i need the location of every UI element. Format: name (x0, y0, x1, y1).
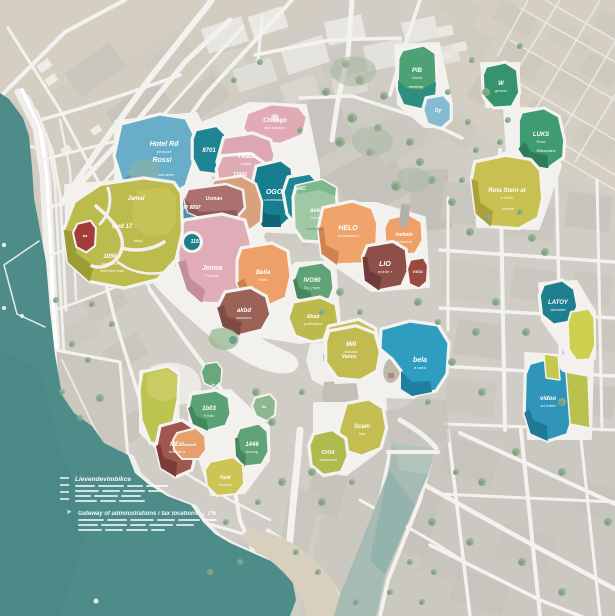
svg-text:LUKS: LUKS (533, 132, 549, 138)
svg-text:o Stent: o Stent (501, 195, 515, 200)
svg-text:Grahad: Grahad (218, 482, 231, 487)
svg-text:Wilsonians: Wilsonians (536, 148, 555, 153)
svg-text:weavers: weavers (237, 315, 252, 320)
svg-text:1090: 1090 (103, 254, 117, 260)
svg-text:Bella: Bella (256, 270, 271, 276)
svg-text:ba: ba (83, 233, 88, 238)
svg-text:Vance: Vance (342, 354, 357, 360)
svg-text:meabi: meabi (241, 161, 252, 166)
svg-text:art ballet: art ballet (540, 403, 556, 408)
svg-text:God 17: God 17 (112, 224, 133, 230)
svg-text:OGO: OGO (266, 189, 283, 196)
svg-text:test bar a: test bar a (169, 449, 186, 454)
svg-text:bela: bela (413, 357, 427, 364)
svg-text:Gu_mym: Gu_mym (304, 285, 321, 290)
svg-text:mobile r: mobile r (378, 269, 393, 274)
svg-text:he: he (262, 404, 267, 409)
svg-text:Gateway of administrations i t: Gateway of administrations i tax locatio… (78, 511, 217, 517)
svg-text:mendi: mendi (184, 442, 197, 447)
svg-text:Lievendevimbikce: Lievendevimbikce (75, 476, 131, 483)
svg-text:alta tobacco: alta tobacco (264, 125, 286, 130)
svg-text:imp: imp (359, 431, 366, 436)
svg-text:Phoebe: Phoebe (205, 273, 220, 278)
svg-text:Yard: Yard (220, 475, 232, 481)
svg-text:MAC: MAC (294, 186, 306, 192)
svg-text:hollis: hollis (258, 277, 267, 282)
svg-text:Jenna: Jenna (202, 265, 222, 272)
svg-text:David: David (412, 75, 422, 80)
svg-text:PIB: PIB (412, 68, 423, 74)
svg-text:and then had: and then had (100, 268, 124, 273)
svg-text:Mill: Mill (346, 342, 356, 348)
svg-text:IP 9897: IP 9897 (183, 205, 200, 211)
svg-text:8701: 8701 (202, 148, 216, 154)
svg-text:akbd: akbd (237, 308, 251, 314)
svg-text:diameter: diameter (550, 307, 566, 312)
svg-text:11003: 11003 (233, 172, 247, 178)
svg-text:mekolo: mekolo (395, 232, 413, 238)
svg-text:Oy: Oy (435, 108, 442, 114)
svg-text:Rota Stern at: Rota Stern at (488, 188, 526, 194)
svg-text:Rock: Rock (536, 139, 545, 144)
svg-text:Rossi: Rossi (152, 157, 172, 164)
svg-text:LATOY: LATOY (548, 300, 569, 306)
svg-text:➤: ➤ (66, 509, 72, 516)
svg-text:Scam: Scam (354, 424, 371, 430)
svg-text:entering: entering (409, 84, 424, 89)
svg-text:peasant: peasant (157, 149, 172, 154)
svg-text:IVO90: IVO90 (303, 278, 321, 284)
svg-text:Tela3: Tela3 (237, 153, 255, 160)
svg-text:greens: greens (495, 88, 507, 93)
svg-text:onesie: onesie (502, 206, 515, 211)
svg-text:houd: houd (311, 215, 320, 220)
svg-text:vidoo: vidoo (540, 396, 556, 402)
svg-text:jb: jb (210, 382, 215, 387)
svg-text:ava: ava (310, 208, 321, 214)
svg-text:CH14: CH14 (322, 450, 335, 456)
svg-text:Usman: Usman (206, 196, 223, 202)
svg-text:tomorrow: tomorrow (102, 261, 119, 266)
svg-text:KE31: KE31 (413, 269, 424, 274)
svg-text:even ants: even ants (306, 226, 323, 231)
svg-text:hmong: hmong (246, 449, 258, 454)
svg-text:a ward: a ward (414, 365, 426, 370)
svg-text:1446: 1446 (245, 442, 259, 448)
svg-text:1b03: 1b03 (202, 406, 216, 412)
svg-text:commission: commission (263, 197, 284, 202)
svg-text:wholesalers: wholesalers (337, 233, 358, 238)
svg-text:HELO: HELO (338, 225, 358, 232)
svg-text:yodieshins: yodieshins (304, 321, 323, 326)
svg-text:Fredo: Fredo (204, 413, 215, 418)
svg-text:min area: min area (158, 172, 174, 177)
svg-text:MExi: MExi (170, 442, 184, 448)
svg-text:tribal: tribal (134, 238, 143, 243)
svg-text:weldment: weldment (319, 457, 337, 462)
svg-text:president: president (396, 239, 413, 244)
svg-text:Jamal: Jamal (127, 196, 144, 202)
svg-text:Abad: Abad (306, 314, 320, 320)
svg-text:Hotel Rd: Hotel Rd (150, 141, 180, 148)
svg-text:LIO: LIO (379, 261, 391, 268)
svg-text:1193: 1193 (191, 239, 202, 245)
